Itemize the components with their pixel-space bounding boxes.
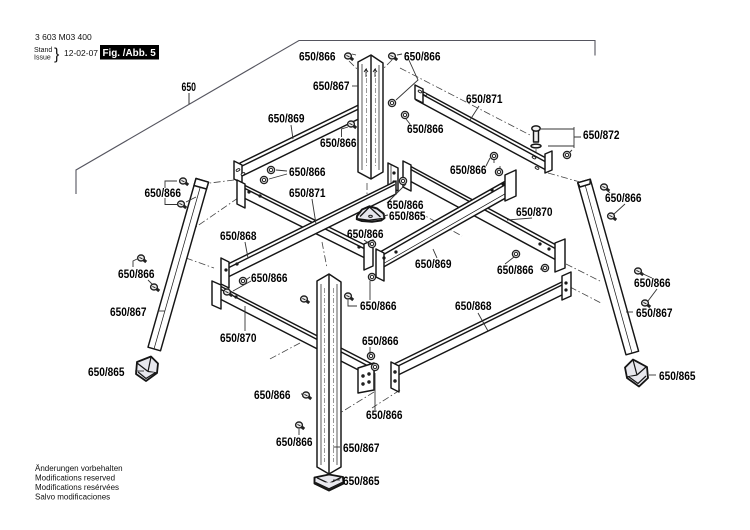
svg-text:650/872: 650/872 — [583, 129, 620, 142]
svg-text:650/871: 650/871 — [466, 93, 503, 106]
svg-text:650/866: 650/866 — [145, 187, 182, 200]
svg-text:650/866: 650/866 — [118, 268, 155, 281]
svg-text:650/866: 650/866 — [276, 436, 313, 449]
svg-text:Salvo modificaciones: Salvo modificaciones — [35, 493, 110, 502]
svg-text:650/866: 650/866 — [347, 228, 384, 241]
svg-text:650/866: 650/866 — [404, 51, 441, 64]
svg-text:}: } — [54, 46, 60, 63]
svg-text:650/866: 650/866 — [450, 164, 487, 177]
svg-text:Änderungen vorbehalten: Änderungen vorbehalten — [35, 464, 123, 473]
svg-text:650/866: 650/866 — [407, 123, 444, 136]
svg-text:650/866: 650/866 — [251, 272, 288, 285]
svg-text:650/870: 650/870 — [220, 332, 257, 345]
svg-text:650/865: 650/865 — [88, 366, 125, 379]
svg-text:650/866: 650/866 — [320, 137, 357, 150]
svg-text:650/870: 650/870 — [516, 206, 553, 219]
svg-text:650/868: 650/868 — [220, 230, 257, 243]
svg-text:650/869: 650/869 — [268, 113, 305, 126]
svg-text:Modifications reserved: Modifications reserved — [35, 474, 115, 483]
svg-text:650/866: 650/866 — [254, 389, 291, 402]
svg-text:Stand: Stand — [34, 47, 52, 54]
svg-text:650/866: 650/866 — [497, 264, 534, 277]
svg-text:650/866: 650/866 — [299, 51, 336, 64]
svg-text:650/865: 650/865 — [659, 370, 696, 383]
svg-text:650/866: 650/866 — [362, 335, 399, 348]
svg-text:Issue: Issue — [34, 55, 51, 62]
svg-text:650/866: 650/866 — [605, 192, 642, 205]
svg-text:650/865: 650/865 — [389, 210, 426, 223]
svg-text:Fig. /Abb. 5: Fig. /Abb. 5 — [103, 48, 157, 59]
svg-text:650/867: 650/867 — [343, 442, 380, 455]
svg-text:Modifications resérvées: Modifications resérvées — [35, 483, 119, 492]
svg-text:650/866: 650/866 — [634, 277, 671, 290]
svg-text:650/871: 650/871 — [289, 187, 326, 200]
svg-text:650/869: 650/869 — [415, 258, 452, 271]
svg-text:650/866: 650/866 — [360, 300, 397, 313]
svg-text:650/865: 650/865 — [343, 475, 380, 488]
svg-text:650/866: 650/866 — [366, 409, 403, 422]
svg-text:650/867: 650/867 — [636, 307, 673, 320]
svg-text:3 603 M03 400: 3 603 M03 400 — [35, 32, 92, 42]
svg-text:650: 650 — [182, 81, 197, 94]
svg-text:650/867: 650/867 — [313, 80, 350, 93]
svg-text:650/867: 650/867 — [110, 306, 147, 319]
svg-text:650/866: 650/866 — [289, 166, 326, 179]
svg-text:12-02-07: 12-02-07 — [64, 48, 98, 58]
svg-text:650/868: 650/868 — [455, 300, 492, 313]
